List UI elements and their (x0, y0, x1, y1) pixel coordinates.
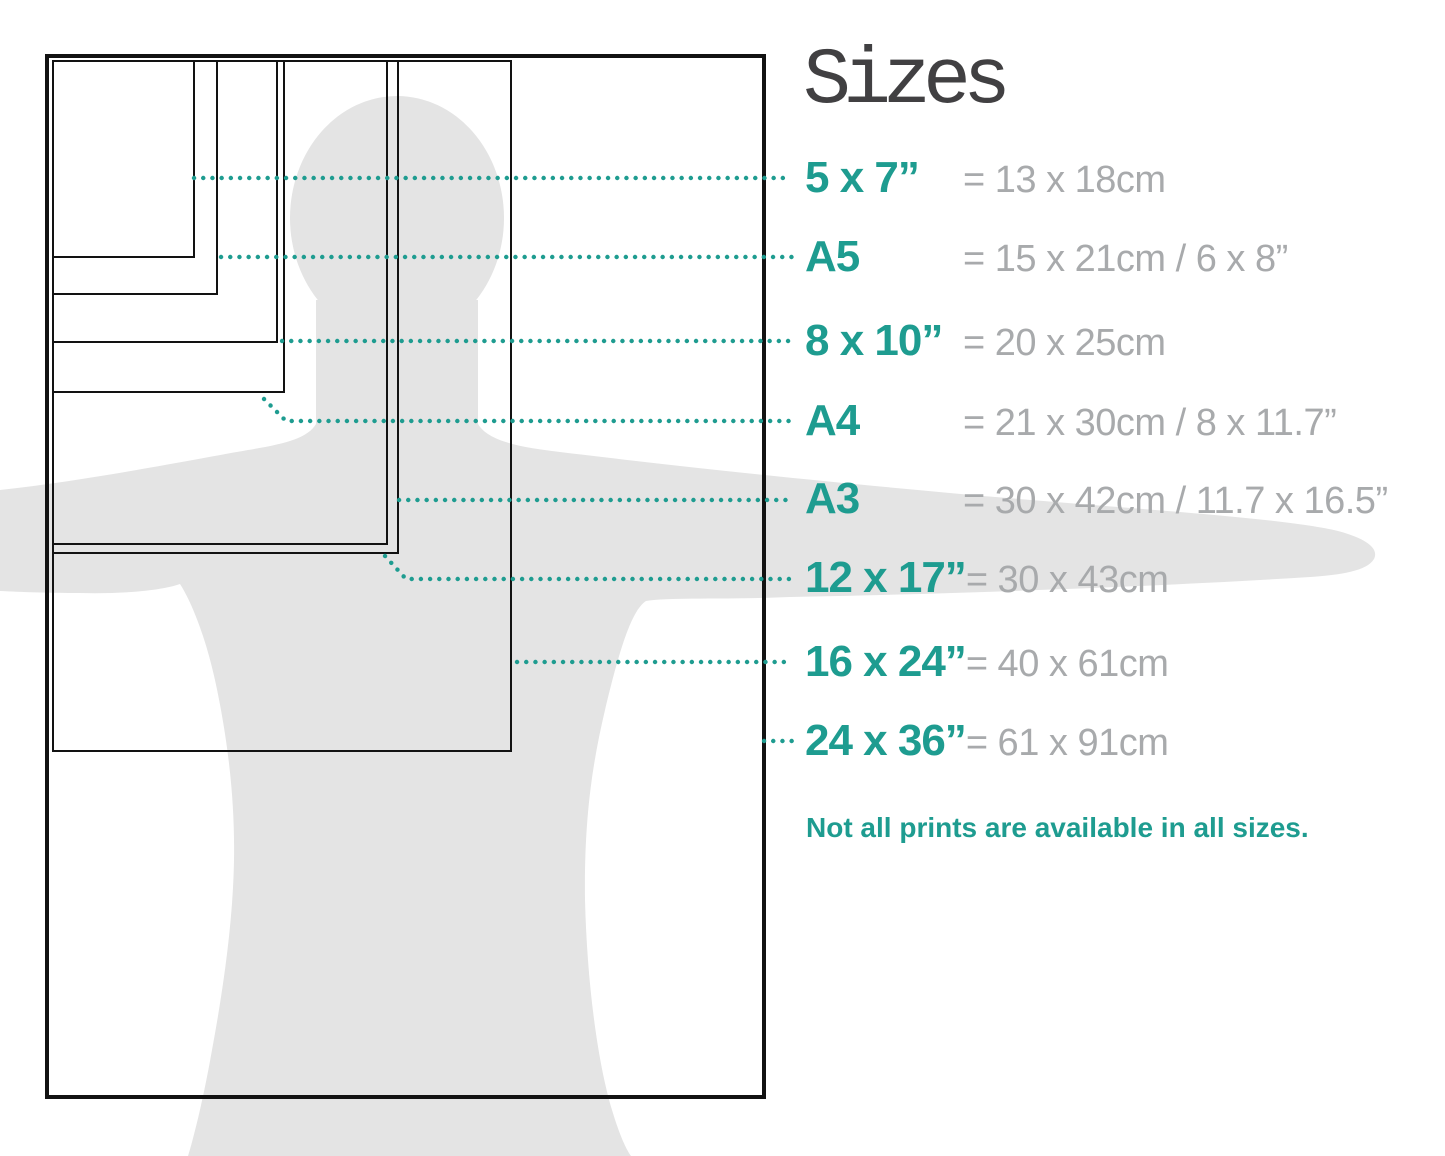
size-metric: = 20 x 25cm (963, 312, 1166, 374)
size-metric: = 13 x 18cm (963, 149, 1166, 211)
size-row-12x17: 12 x 17” = 30 x 43cm (805, 547, 1425, 609)
size-label: A4 (805, 390, 963, 452)
availability-note: Not all prints are available in all size… (806, 812, 1309, 844)
size-row-24x36: 24 x 36” = 61 x 91cm (805, 710, 1425, 772)
size-metric: = 40 x 61cm (966, 633, 1169, 695)
size-label: 8 x 10” (805, 310, 963, 372)
size-label: 24 x 36” (805, 710, 966, 772)
size-metric: = 30 x 42cm / 11.7 x 16.5” (963, 470, 1388, 532)
size-label: 12 x 17” (805, 547, 966, 609)
size-metric: = 21 x 30cm / 8 x 11.7” (963, 392, 1336, 454)
size-row-a5: A5 = 15 x 21cm / 6 x 8” (805, 226, 1425, 288)
size-guide-diagram: Sizes 5 x 7” = 13 x 18cm A5 = 15 x 21cm … (0, 0, 1445, 1156)
size-row-8x10: 8 x 10” = 20 x 25cm (805, 310, 1425, 372)
size-metric: = 15 x 21cm / 6 x 8” (963, 228, 1288, 290)
size-label: 16 x 24” (805, 631, 966, 693)
rect-5x7 (52, 60, 195, 258)
size-row-5x7: 5 x 7” = 13 x 18cm (805, 147, 1425, 209)
size-label: A5 (805, 226, 963, 288)
size-row-16x24: 16 x 24” = 40 x 61cm (805, 631, 1425, 693)
size-label: 5 x 7” (805, 147, 963, 209)
size-row-a4: A4 = 21 x 30cm / 8 x 11.7” (805, 390, 1425, 452)
page-title: Sizes (803, 42, 1003, 122)
size-label: A3 (805, 468, 963, 530)
size-row-a3: A3 = 30 x 42cm / 11.7 x 16.5” (805, 468, 1425, 530)
size-metric: = 61 x 91cm (966, 712, 1169, 774)
size-metric: = 30 x 43cm (966, 549, 1169, 611)
